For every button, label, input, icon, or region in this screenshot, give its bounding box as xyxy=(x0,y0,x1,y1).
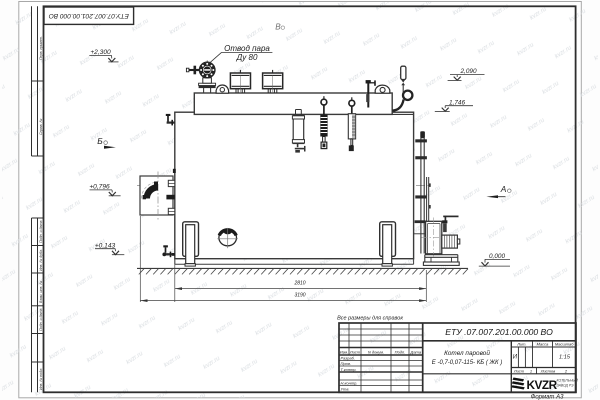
svg-text:Лист: Лист xyxy=(513,369,525,374)
svg-text:Формат А3: Формат А3 xyxy=(531,395,564,400)
svg-text:0,000: 0,000 xyxy=(489,253,505,260)
svg-text:Инв. № подл.: Инв. № подл. xyxy=(39,368,43,390)
svg-text:Масса: Масса xyxy=(537,342,550,347)
svg-text:ЕТУ.07.007.201.00.000 ВО: ЕТУ.07.007.201.00.000 ВО xyxy=(49,12,129,19)
svg-text:Подп.: Подп. xyxy=(395,349,406,354)
svg-text:3190: 3190 xyxy=(294,293,305,299)
svg-text:Масштаб: Масштаб xyxy=(555,342,574,347)
svg-text:КОТЕЛЬНЫЙ: КОТЕЛЬНЫЙ xyxy=(557,379,579,383)
svg-text:ЕТУ .07.007.201.00.000 ВО: ЕТУ .07.007.201.00.000 ВО xyxy=(445,327,553,337)
svg-text:Взам. инв. №: Взам. инв. № xyxy=(39,281,43,303)
svg-text:Лист: Лист xyxy=(349,349,361,354)
svg-text:Пров.: Пров. xyxy=(341,361,352,366)
svg-text:Инв. № дубл.: Инв. № дубл. xyxy=(39,249,43,271)
svg-text:1,746: 1,746 xyxy=(449,99,465,106)
svg-text:И: И xyxy=(513,355,518,361)
svg-text:1:15: 1:15 xyxy=(559,355,571,361)
svg-text:Т.контр.: Т.контр. xyxy=(341,367,357,372)
svg-text:Листов: Листов xyxy=(540,369,556,374)
svg-text:2810: 2810 xyxy=(293,281,305,287)
svg-text:Лит.: Лит. xyxy=(516,342,526,347)
svg-text:Разраб.: Разраб. xyxy=(341,356,355,361)
svg-text:Б: Б xyxy=(97,136,103,146)
svg-text:Дата: Дата xyxy=(410,349,422,354)
svg-text:Н.контр.: Н.контр. xyxy=(341,381,358,386)
svg-text:Подп. и дата: Подп. и дата xyxy=(39,221,43,244)
svg-text:Подп. и дата: Подп. и дата xyxy=(39,309,43,332)
svg-text:В: В xyxy=(275,23,281,32)
svg-text:KVZR: KVZR xyxy=(527,378,558,392)
svg-text:Изм.: Изм. xyxy=(340,349,349,354)
svg-text:2,090: 2,090 xyxy=(460,68,477,75)
svg-text:Ду 80: Ду 80 xyxy=(236,53,258,62)
svg-text:Утв.: Утв. xyxy=(341,387,350,392)
svg-text:А: А xyxy=(500,184,507,194)
svg-text:Перв. примен.: Перв. примен. xyxy=(39,36,43,60)
svg-text:N докум.: N докум. xyxy=(368,349,384,354)
svg-text:ЗАВОД РЭ: ЗАВОД РЭ xyxy=(557,384,575,388)
svg-text:Справ. №: Справ. № xyxy=(39,119,43,135)
svg-text:Котел паровой: Котел паровой xyxy=(444,349,490,357)
svg-text:Отвод пара: Отвод пара xyxy=(224,44,270,53)
svg-text:Е -0,7-0,07-115- КБ ( ЖК ): Е -0,7-0,07-115- КБ ( ЖК ) xyxy=(432,360,502,366)
svg-text:1: 1 xyxy=(530,369,532,374)
svg-text:Все размеры для справок: Все размеры для справок xyxy=(337,315,403,321)
